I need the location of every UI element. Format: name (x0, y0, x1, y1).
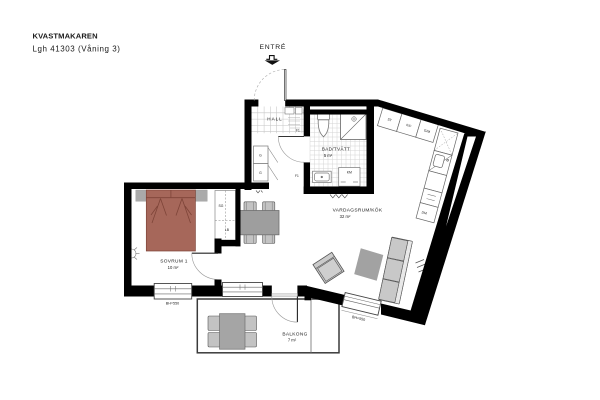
svg-text:KVASTMAKAREN: KVASTMAKAREN (33, 32, 98, 41)
svg-text:G: G (259, 171, 262, 175)
svg-text:SOVRUM 1: SOVRUM 1 (160, 259, 187, 265)
svg-text:7 m²: 7 m² (288, 338, 297, 343)
svg-text:BH=550: BH=550 (166, 301, 179, 305)
svg-text:F1: F1 (295, 174, 299, 178)
svg-text:SG: SG (219, 204, 224, 208)
svg-text:10 m²: 10 m² (168, 265, 179, 270)
svg-text:32 m²: 32 m² (340, 214, 351, 219)
svg-text:LB: LB (225, 228, 230, 232)
svg-text:ENTRÉ: ENTRÉ (260, 42, 287, 51)
svg-text:VARDAGSRUM/KÖK: VARDAGSRUM/KÖK (333, 207, 383, 214)
svg-text:KM: KM (347, 171, 352, 175)
svg-text:F1: F1 (296, 129, 300, 133)
svg-text:G: G (259, 154, 262, 158)
svg-text:BAD/TVÄTT: BAD/TVÄTT (322, 146, 350, 152)
svg-text:HALL: HALL (267, 117, 283, 122)
svg-text:Lgh 41303 (Våning 3): Lgh 41303 (Våning 3) (33, 45, 121, 54)
svg-text:5 m²: 5 m² (324, 153, 333, 158)
